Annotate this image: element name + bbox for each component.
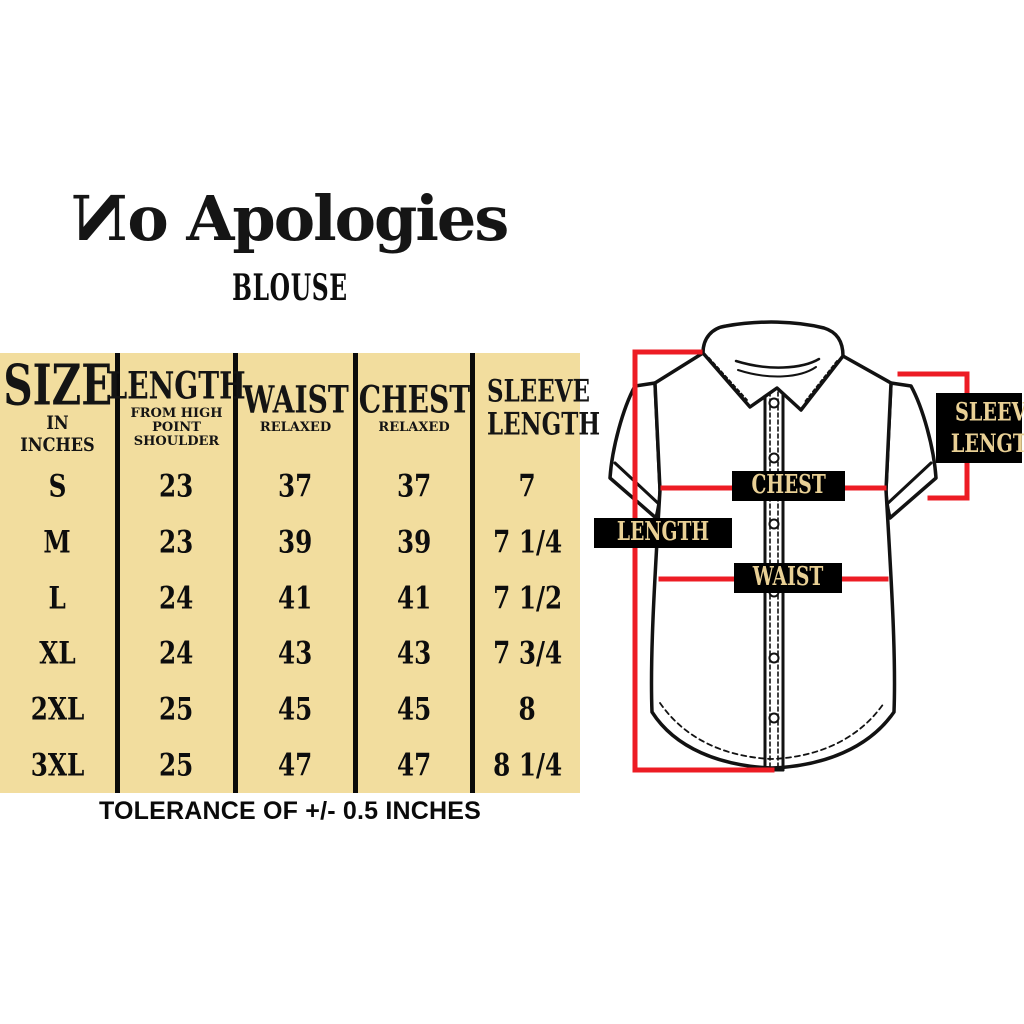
header-label: LENGTH [107,367,245,405]
table-cell: 7 3/4 [475,625,580,681]
header-label: WAIST [243,381,349,419]
table-cell: 37 [358,458,470,514]
table-cell: 3XL [0,737,115,793]
header-sub: IN INCHES [9,412,107,456]
table-cell: 45 [238,681,353,737]
sleeve-length-label: SLEEVE LENGTH [936,393,1022,463]
table-cell: 37 [238,458,353,514]
table-cell: 24 [120,570,233,626]
table-cell: 2XL [0,681,115,737]
column-header-length: LENGTH FROM HIGH POINT SHOULDER [120,353,233,458]
table-cell: 7 [475,458,580,514]
column-header-chest: CHEST RELAXED [358,353,470,458]
chest-label: CHEST [732,471,845,501]
shirt-illustration [590,300,1024,812]
header-sub: RELAXED [378,421,449,435]
table-column-length: LENGTH FROM HIGH POINT SHOULDER 23 23 24… [115,353,233,793]
header: No Apologies BLOUSE [0,186,580,309]
table-cell: 41 [238,570,353,626]
table-column-sleeve-length: SLEEVE LENGTH 7 7 1/4 7 1/2 7 3/4 8 8 1/… [470,353,580,793]
waist-label: WAIST [734,563,842,593]
product-title: BLOUSE [232,267,348,309]
column-header-sleeve-length: SLEEVE LENGTH [475,353,580,458]
shirt-diagram: LENGTH CHEST WAIST SLEEVE LENGTH [590,300,1024,812]
tolerance-note: TOLERANCE OF +/- 0.5 INCHES [0,797,580,826]
table-cell: 41 [358,570,470,626]
table-cell: 39 [358,514,470,570]
table-cell: 47 [238,737,353,793]
table-column-waist: WAIST RELAXED 37 39 41 43 45 47 [233,353,353,793]
size-table: SIZE IN INCHES S M L XL 2XL 3XL LENGTH F… [0,353,580,793]
table-cell: 25 [120,681,233,737]
table-cell: 7 1/4 [475,514,580,570]
table-cell: 45 [358,681,470,737]
header-sub: FROM HIGH POINT SHOULDER [123,407,231,450]
shirt-body [651,350,894,768]
product-title-wrap: BLOUSE [0,267,580,309]
header-label: SLEEVE LENGTH [487,375,569,442]
table-cell: L [0,570,115,626]
column-header-waist: WAIST RELAXED [238,353,353,458]
table-cell: 24 [120,625,233,681]
header-label: SIZE [3,359,112,412]
table-cell: XL [0,625,115,681]
column-header-size: SIZE IN INCHES [0,353,115,458]
header-label: CHEST [358,381,469,419]
table-cell: 7 1/2 [475,570,580,626]
length-label: LENGTH [594,518,732,548]
table-cell: M [0,514,115,570]
brand-logo: No Apologies [0,186,580,251]
table-cell: 47 [358,737,470,793]
table-cell: 39 [238,514,353,570]
table-cell: 43 [358,625,470,681]
header-sub: RELAXED [260,421,331,435]
table-cell: 23 [120,514,233,570]
table-cell: 25 [120,737,233,793]
table-cell: 8 1/4 [475,737,580,793]
size-chart-page: No Apologies BLOUSE SIZE IN INCHES S M L… [0,0,1024,1024]
table-cell: S [0,458,115,514]
table-column-size: SIZE IN INCHES S M L XL 2XL 3XL [0,353,115,793]
table-column-chest: CHEST RELAXED 37 39 41 43 45 47 [353,353,470,793]
table-cell: 43 [238,625,353,681]
table-cell: 23 [120,458,233,514]
table-cell: 8 [475,681,580,737]
